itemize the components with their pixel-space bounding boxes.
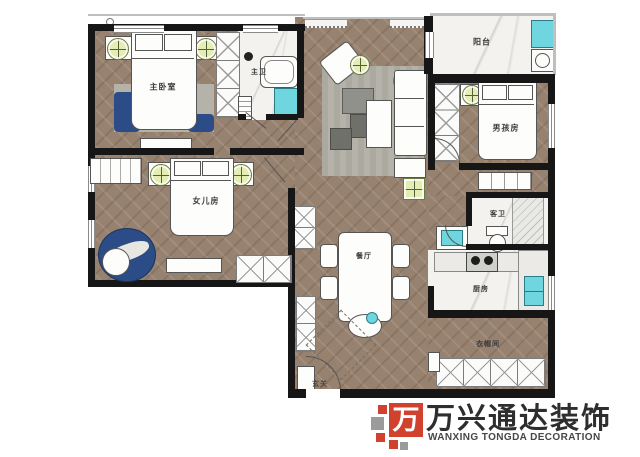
room-label-kitchen: 厨房 xyxy=(473,284,489,294)
balcony-right-line xyxy=(553,13,556,75)
wall-kitchen-cloak-divider xyxy=(428,310,555,318)
ceiling-lamp-symbol xyxy=(403,178,425,200)
wall-master-bottom xyxy=(88,148,214,155)
entry-door-opening xyxy=(306,389,340,398)
balcony-top-line xyxy=(430,13,556,16)
living-bay-window-left xyxy=(305,19,347,28)
window-daughter-left2 xyxy=(88,220,95,248)
wall-guestbath-bottom xyxy=(466,244,548,250)
daughter-bed-pillow xyxy=(174,161,201,176)
plant-icon xyxy=(195,38,217,60)
wall-stub-daughter-top xyxy=(288,148,304,155)
daughter-bed-pillow xyxy=(202,161,229,176)
room-label-dining: 餐厅 xyxy=(356,251,372,261)
room-label-daughters-room: 女儿房 xyxy=(193,196,220,207)
dining-chair xyxy=(392,244,410,268)
logo-square xyxy=(376,433,385,442)
dining-chair xyxy=(320,276,338,300)
dining-plant-pot xyxy=(366,312,378,324)
window-boys-right xyxy=(548,104,555,148)
sofa-end-table xyxy=(394,158,426,178)
logo-name-chinese: 万兴通达装饰 xyxy=(426,395,612,437)
living-side-table xyxy=(366,100,392,148)
wall-master-living-divider xyxy=(297,24,304,118)
room-label-master-bath: 主卫 xyxy=(251,67,267,77)
daughter-bench xyxy=(166,258,222,273)
wall-corridor-left xyxy=(288,287,295,398)
sofa-cushion-line xyxy=(395,98,424,99)
logo-square xyxy=(371,417,384,430)
boys-bed-blanket-line xyxy=(479,104,534,105)
kitchen-sink xyxy=(524,276,544,306)
wall-boys-bottom-stub xyxy=(428,163,434,170)
logo-square xyxy=(389,440,398,449)
window-master-top xyxy=(114,25,164,33)
room-label-boys-room: 男孩房 xyxy=(493,123,520,134)
master-bed-blanket-line xyxy=(132,58,194,59)
company-logo: 万 万兴通达装饰 WANXING TONGDA DECORATION xyxy=(368,398,638,456)
room-label-master-bedroom: 主卧室 xyxy=(150,82,177,93)
cloakroom-cabinet xyxy=(428,352,440,372)
stove-burner xyxy=(484,256,493,265)
room-label-balcony: 阳台 xyxy=(473,37,491,48)
cloakroom-wardrobe xyxy=(436,358,546,387)
floor-plan: 主卧室 主卫 阳台 男孩房 女儿房 客卫 厨房 餐厅 衣帽间 玄关 万 万兴通达… xyxy=(0,0,640,457)
wall-kitchen-left-stub xyxy=(428,286,434,312)
tv-cabinet xyxy=(292,206,316,250)
window-living-balcony xyxy=(425,32,434,58)
daughter-desk xyxy=(90,158,142,184)
logo-name-english: WANXING TONGDA DECORATION xyxy=(428,432,601,443)
sofa-cushion-line xyxy=(395,126,424,127)
window-bath-top xyxy=(243,25,278,33)
dining-chair xyxy=(320,244,338,268)
logo-wan-glyph: 万 xyxy=(389,403,423,437)
wall-boys-left xyxy=(428,74,435,170)
wall-boys-bottom xyxy=(459,163,550,170)
washing-machine-drum xyxy=(535,53,550,68)
master-bed-pillow xyxy=(135,34,163,51)
dining-table xyxy=(338,232,392,322)
stove-burner xyxy=(471,256,480,265)
hall-cabinet xyxy=(478,172,532,190)
dining-chair xyxy=(392,276,410,300)
plant-icon xyxy=(107,38,129,60)
boys-bed-pillow xyxy=(482,85,507,100)
outer-line-top xyxy=(88,14,305,16)
wall-bath-bottom2 xyxy=(266,114,298,120)
master-bath-sink-icon xyxy=(244,52,253,61)
guest-shower xyxy=(512,196,544,246)
room-label-guest-bath: 客卫 xyxy=(490,209,506,219)
logo-mark-icon: 万 xyxy=(370,401,422,453)
plant-icon xyxy=(350,55,370,75)
daughter-bed-blanket-line xyxy=(171,180,231,181)
boys-bed-pillow xyxy=(508,85,533,100)
daughter-ottoman xyxy=(102,248,130,276)
balcony-sink xyxy=(531,20,554,48)
master-shower-tray xyxy=(274,88,298,116)
wall-guestbath-left-upper xyxy=(466,198,472,226)
wall-guestbath-top xyxy=(466,192,548,198)
master-wardrobe xyxy=(216,32,240,118)
wall-balcony-boys xyxy=(428,74,555,83)
living-bay-window-right xyxy=(390,19,424,28)
daughter-wardrobe xyxy=(236,255,292,283)
room-label-entry: 玄关 xyxy=(312,379,328,389)
master-bathtub-inner xyxy=(264,60,294,84)
coffee-table-dark2 xyxy=(330,128,352,150)
logo-square xyxy=(400,442,408,450)
plant-icon xyxy=(150,164,172,186)
room-label-cloakroom: 衣帽间 xyxy=(476,339,500,349)
master-bed-pillow xyxy=(164,34,192,51)
wall-bath-bottom xyxy=(238,114,246,120)
logo-square xyxy=(378,405,387,414)
sofa xyxy=(394,70,427,156)
